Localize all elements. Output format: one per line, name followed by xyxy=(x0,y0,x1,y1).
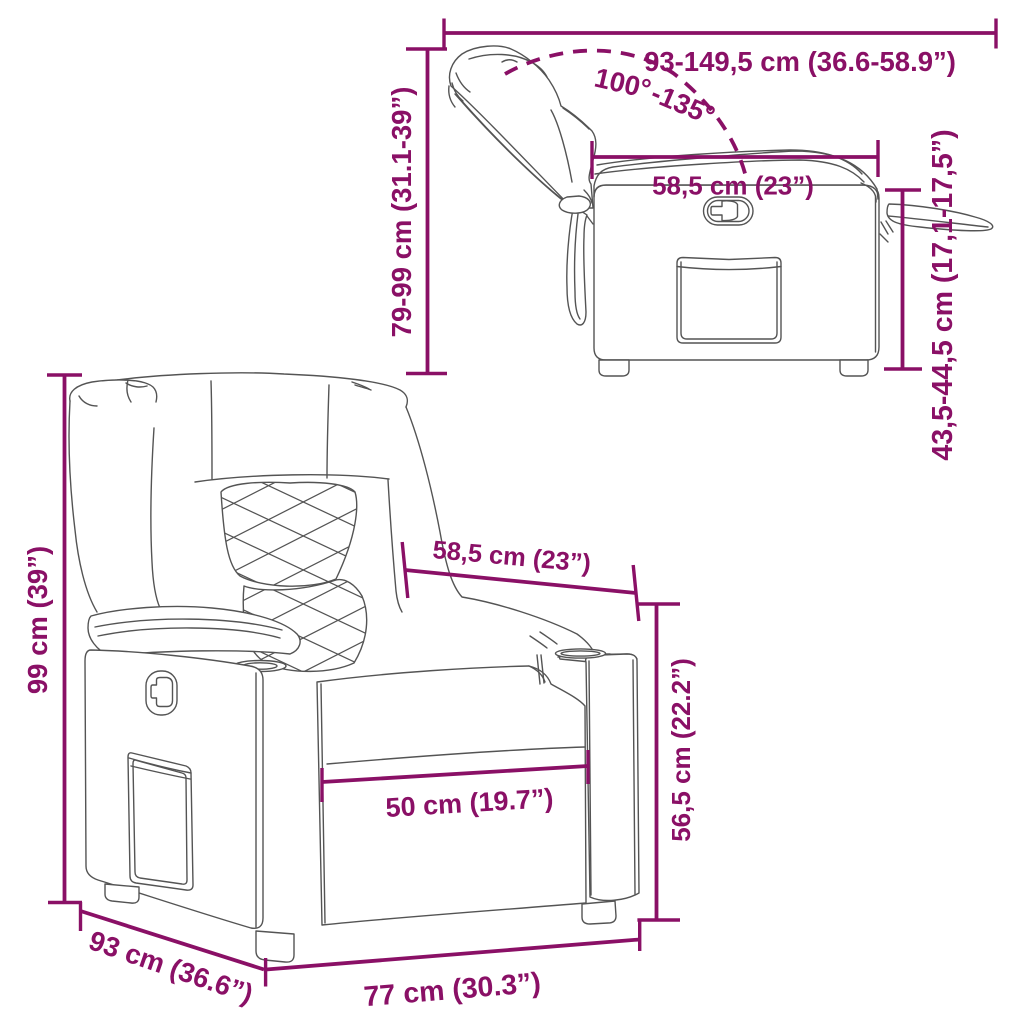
svg-text:56,5 cm (22.2”): 56,5 cm (22.2”) xyxy=(666,658,696,842)
svg-text:58,5 cm (23”): 58,5 cm (23”) xyxy=(652,171,814,201)
svg-text:79-99 cm (31.1-39”): 79-99 cm (31.1-39”) xyxy=(386,87,417,338)
svg-text:43,5-44,5 cm (17,1-17,5”): 43,5-44,5 cm (17,1-17,5”) xyxy=(927,129,959,460)
svg-text:99 cm (39”): 99 cm (39”) xyxy=(22,546,53,694)
svg-text:93-149,5 cm (36.6-58.9”): 93-149,5 cm (36.6-58.9”) xyxy=(644,46,956,77)
